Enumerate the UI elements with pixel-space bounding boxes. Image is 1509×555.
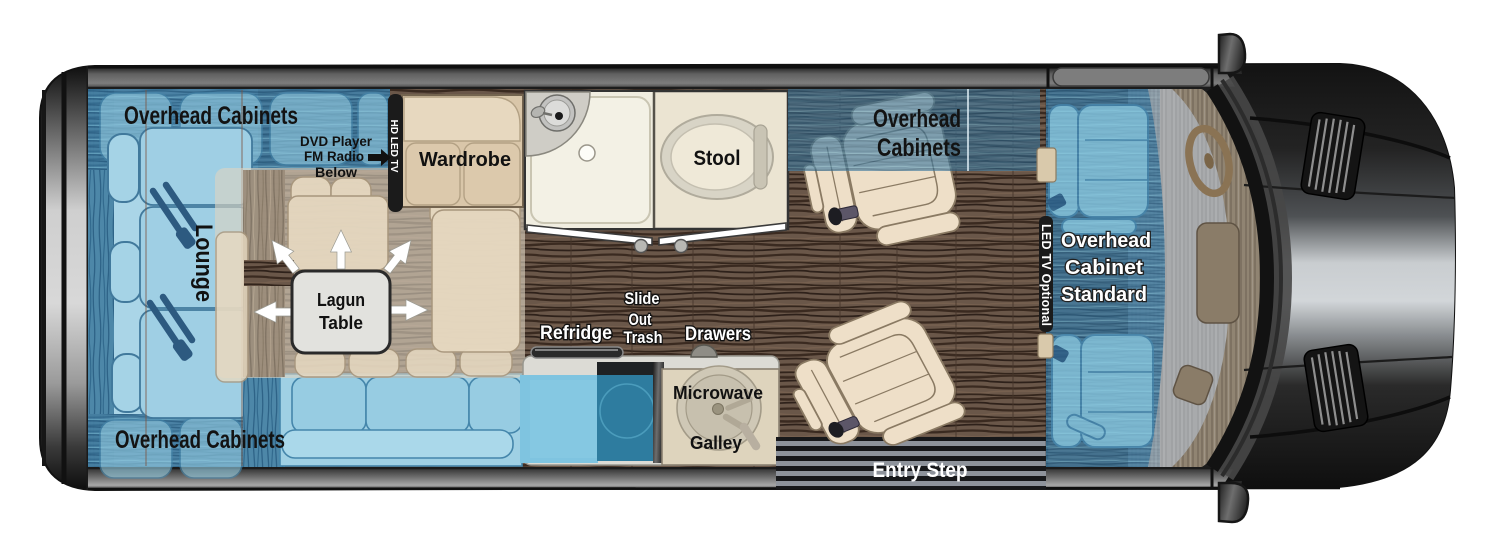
svg-text:Cabinet: Cabinet — [1065, 257, 1143, 279]
svg-text:Entry Step: Entry Step — [873, 459, 968, 482]
svg-text:HD LED TV: HD LED TV — [388, 120, 399, 173]
svg-text:Cabinets: Cabinets — [877, 134, 961, 162]
svg-text:Wardrobe: Wardrobe — [419, 149, 511, 171]
svg-text:Overhead Cabinets: Overhead Cabinets — [115, 426, 285, 454]
svg-text:Lounge: Lounge — [190, 224, 217, 302]
svg-text:Table: Table — [319, 312, 363, 333]
svg-text:Drawers: Drawers — [685, 324, 751, 345]
svg-text:Galley: Galley — [690, 433, 742, 453]
svg-text:Microwave: Microwave — [673, 383, 763, 403]
svg-text:Overhead Cabinets: Overhead Cabinets — [124, 102, 298, 130]
svg-text:DVD Player: DVD Player — [300, 134, 373, 149]
svg-text:Trash: Trash — [624, 328, 663, 347]
svg-text:FM Radio: FM Radio — [304, 149, 364, 164]
svg-text:Refridge: Refridge — [540, 323, 612, 344]
svg-text:Below: Below — [315, 165, 358, 180]
svg-text:Out: Out — [629, 310, 652, 329]
svg-text:Lagun: Lagun — [317, 289, 365, 310]
svg-text:Standard: Standard — [1061, 284, 1147, 306]
svg-text:Overhead: Overhead — [1061, 230, 1151, 252]
svg-text:Overhead: Overhead — [873, 105, 961, 133]
svg-text:Slide: Slide — [625, 289, 660, 308]
svg-text:LED TV Optional: LED TV Optional — [1039, 224, 1053, 326]
svg-text:Stool: Stool — [694, 147, 741, 170]
